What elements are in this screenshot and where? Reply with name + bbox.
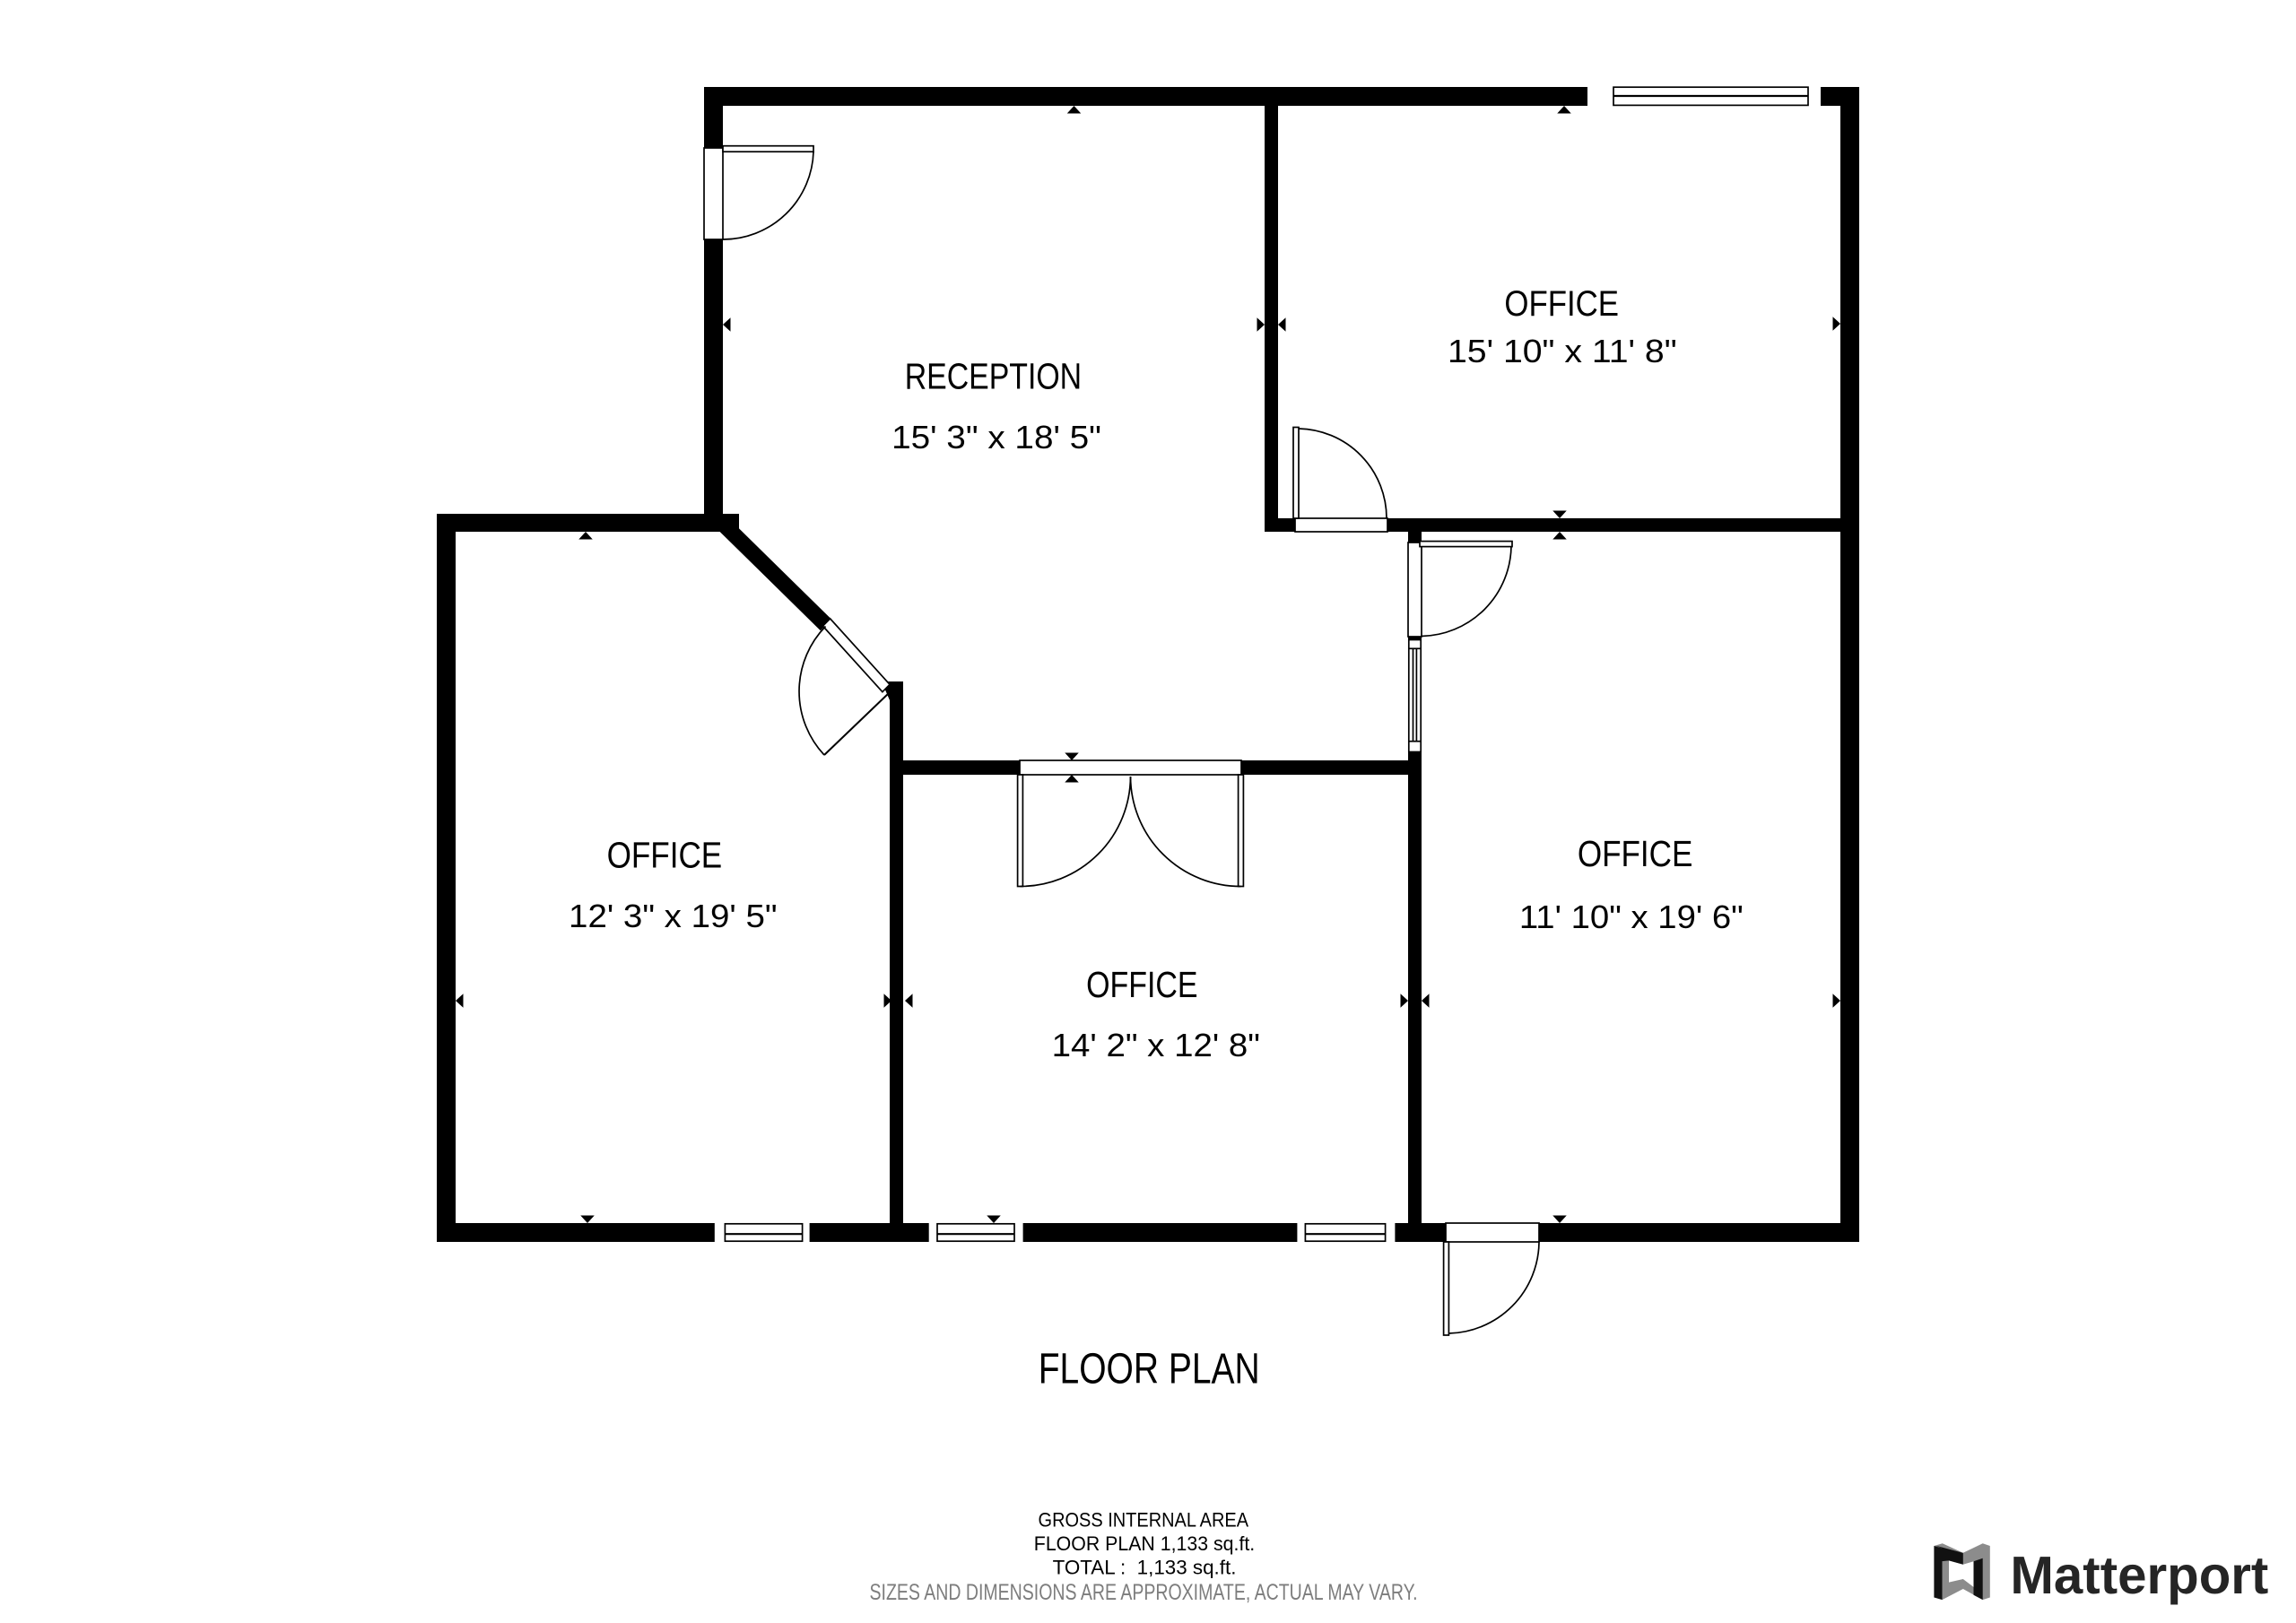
svg-text:FLOOR PLAN: FLOOR PLAN [1039,1345,1260,1393]
svg-text:OFFICE: OFFICE [1086,964,1197,1005]
svg-text:FLOOR PLAN 1,133 sq.ft.: FLOOR PLAN 1,133 sq.ft. [1034,1532,1255,1554]
svg-text:GROSS INTERNAL AREA: GROSS INTERNAL AREA [1039,1510,1249,1532]
svg-text:OFFICE: OFFICE [1578,834,1693,875]
svg-text:OFFICE: OFFICE [1504,283,1619,324]
svg-text:11' 10" x 19' 6": 11' 10" x 19' 6" [1519,898,1744,935]
svg-text:RECEPTION: RECEPTION [905,355,1082,396]
svg-text:15' 10" x 11' 8": 15' 10" x 11' 8" [1448,334,1677,369]
svg-text:TOTAL : 1,133 sq.ft.: TOTAL : 1,133 sq.ft. [1053,1557,1237,1579]
svg-text:SIZES AND DIMENSIONS ARE APPRO: SIZES AND DIMENSIONS ARE APPROXIMATE, AC… [869,1580,1417,1605]
svg-text:12' 3" x 19' 5": 12' 3" x 19' 5" [569,898,778,934]
svg-text:OFFICE: OFFICE [607,835,723,876]
svg-text:15' 3" x 18' 5": 15' 3" x 18' 5" [891,419,1101,455]
svg-text:14' 2" x 12' 8": 14' 2" x 12' 8" [1052,1027,1260,1063]
svg-text:Matterport: Matterport [2010,1547,2268,1605]
